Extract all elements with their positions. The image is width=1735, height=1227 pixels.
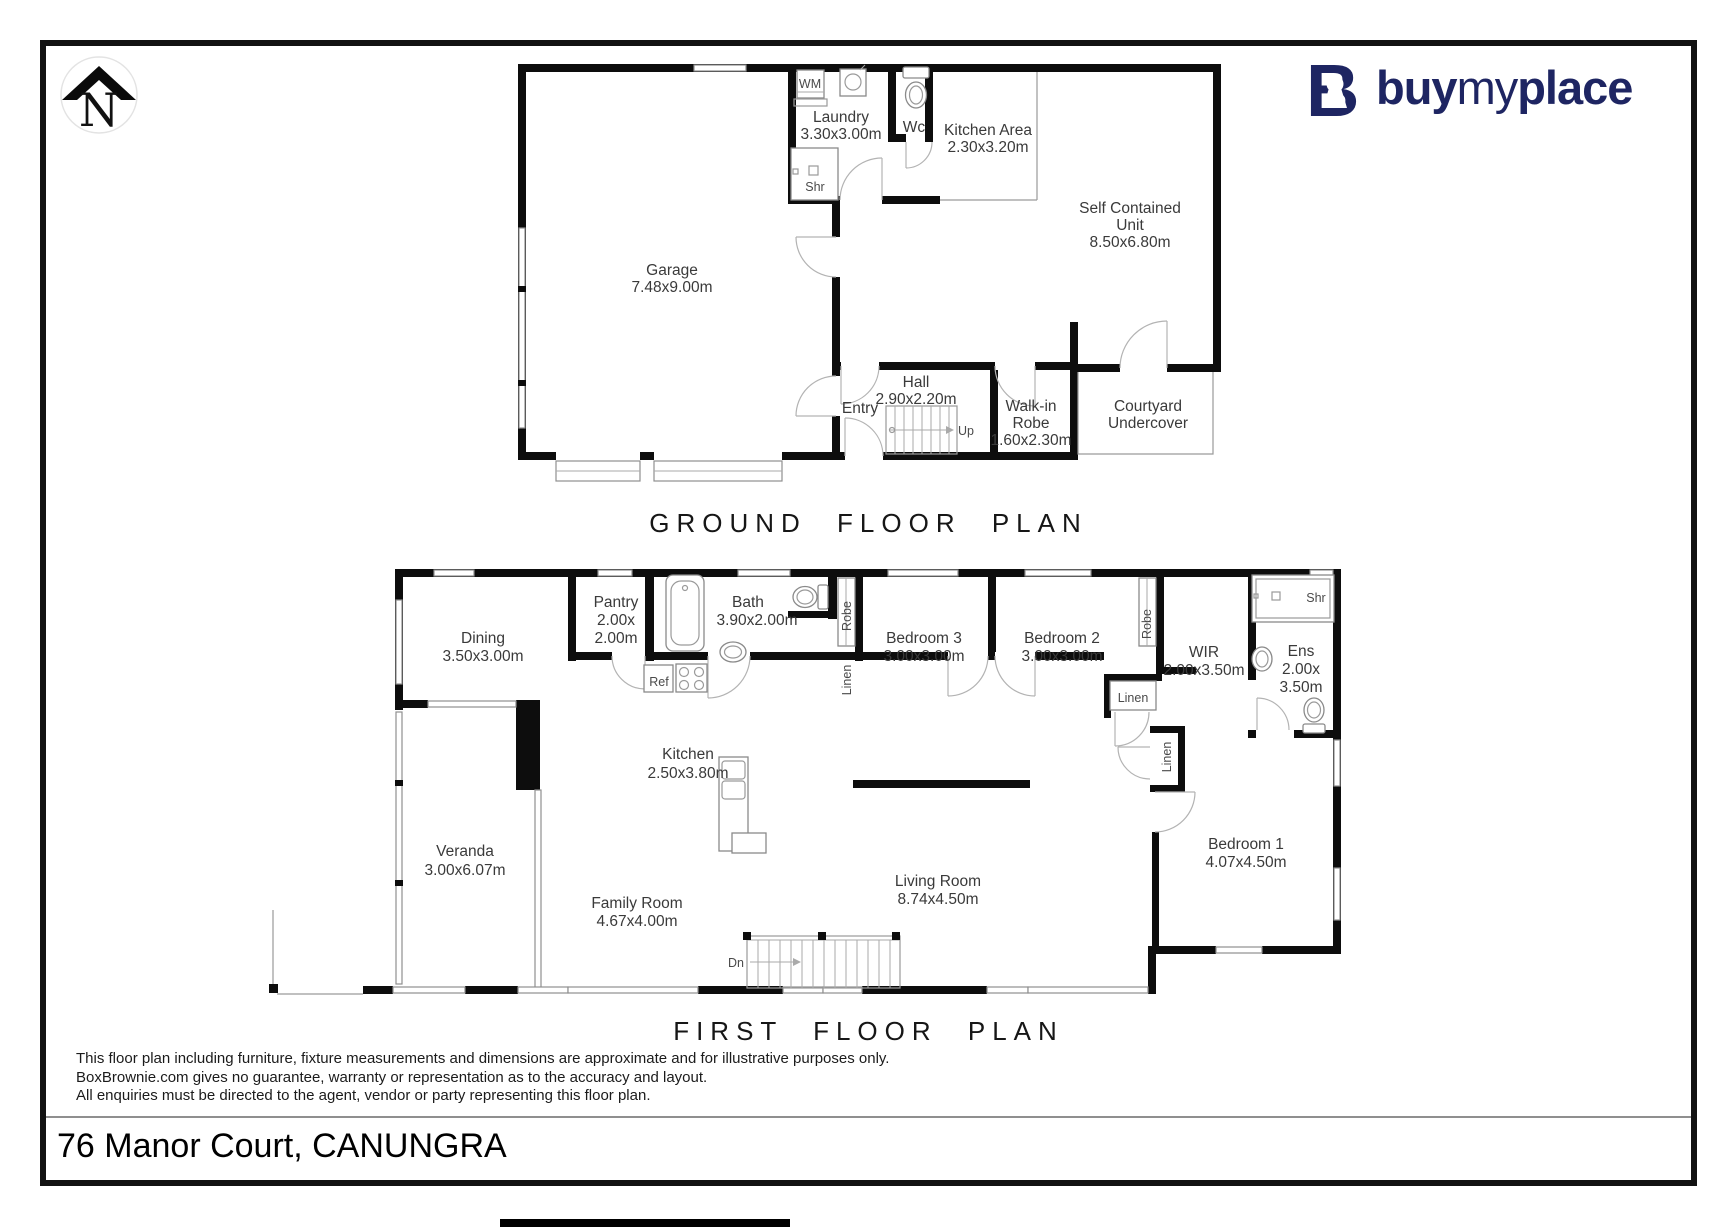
room-label-hall: Hall bbox=[903, 374, 930, 391]
room-label-dining: Dining bbox=[461, 630, 505, 647]
stairs-label-up: Up bbox=[958, 424, 974, 438]
ground-floor-heading: GROUND FLOOR PLAN bbox=[40, 508, 1697, 539]
room-dims-kitchen: 2.50x3.80m bbox=[648, 765, 729, 782]
first-doors bbox=[612, 656, 1289, 832]
room-dims-garage: 7.48x9.00m bbox=[632, 279, 713, 296]
room-dims-ens-1: 2.00x bbox=[1282, 661, 1320, 678]
veranda-deck-edge bbox=[269, 910, 363, 994]
toilet-icon-ground bbox=[903, 67, 929, 108]
room-dims-wir: 2.00x3.50m bbox=[1164, 662, 1245, 679]
bottom-page-strip bbox=[500, 1219, 790, 1227]
room-label-kitchen-area: Kitchen Area bbox=[944, 122, 1032, 139]
ground-labels: Garage 7.48x9.00m Laundry 3.30x3.00m Wc … bbox=[632, 77, 1189, 449]
room-dims-ens-2: 3.50m bbox=[1279, 679, 1322, 696]
ground-stairs-up bbox=[886, 406, 957, 454]
bath-toilet-icon bbox=[793, 585, 828, 609]
property-address: 76 Manor Court, CANUNGRA bbox=[57, 1127, 507, 1166]
disclaimer-line-2: BoxBrownie.com gives no guarantee, warra… bbox=[76, 1069, 889, 1088]
room-label-self-contained-2: Unit bbox=[1116, 217, 1144, 234]
room-label-entry: Entry bbox=[842, 400, 878, 417]
disclaimer-line-3: All enquiries must be directed to the ag… bbox=[76, 1087, 889, 1106]
room-label-courtyard-2: Undercover bbox=[1108, 415, 1188, 432]
room-dims-kitchen-area: 2.30x3.20m bbox=[948, 139, 1029, 156]
linen-label-hall: Linen bbox=[840, 665, 854, 696]
linen-label-2: Linen bbox=[1160, 742, 1174, 773]
room-label-garage: Garage bbox=[646, 262, 698, 279]
room-label-laundry: Laundry bbox=[813, 109, 869, 126]
stove-icon bbox=[676, 664, 707, 692]
room-dims-hall: 2.90x2.20m bbox=[876, 391, 957, 408]
room-dims-walkin: 1.60x2.30m bbox=[991, 432, 1072, 449]
room-label-ens: Ens bbox=[1288, 643, 1315, 660]
room-label-bedroom1: Bedroom 1 bbox=[1208, 836, 1284, 853]
fixture-label-shr-ground: Shr bbox=[805, 180, 824, 194]
room-label-walkin-1: Walk-in bbox=[1005, 398, 1056, 415]
robe-label-bed2: Robe bbox=[1140, 609, 1154, 639]
fixture-label-ref: Ref bbox=[649, 675, 669, 689]
floorplan-page: B buymyplace N bbox=[0, 0, 1735, 1227]
address-divider-line bbox=[46, 1116, 1691, 1118]
room-dims-self-contained: 8.50x6.80m bbox=[1090, 234, 1171, 251]
room-label-family: Family Room bbox=[591, 895, 682, 912]
room-label-wir: WIR bbox=[1189, 644, 1219, 661]
compass-north-letter: N bbox=[79, 83, 119, 137]
room-label-self-contained-1: Self Contained bbox=[1079, 200, 1181, 217]
disclaimer-text: This floor plan including furniture, fix… bbox=[76, 1050, 889, 1106]
ens-toilet-icon bbox=[1303, 698, 1325, 733]
bath-basin-icon bbox=[720, 642, 746, 662]
ground-floor-plan: Garage 7.48x9.00m Laundry 3.30x3.00m Wc … bbox=[518, 64, 1221, 481]
first-floor-heading: FIRST FLOOR PLAN bbox=[40, 1016, 1697, 1047]
robe-label-bed3: Robe bbox=[840, 601, 854, 631]
ens-basin-icon bbox=[1252, 647, 1272, 671]
room-dims-bath: 3.90x2.00m bbox=[717, 612, 798, 629]
room-dims-bedroom2: 3.00x3.00m bbox=[1022, 648, 1103, 665]
bathtub-icon bbox=[666, 575, 704, 651]
room-label-wc: Wc bbox=[903, 119, 926, 136]
laundry-sink-icon bbox=[840, 65, 866, 96]
room-dims-pantry-1: 2.00x bbox=[597, 612, 635, 629]
room-label-bedroom3: Bedroom 3 bbox=[886, 630, 962, 647]
north-compass: N bbox=[61, 57, 137, 137]
stairs-label-dn: Dn bbox=[728, 956, 744, 970]
room-label-kitchen: Kitchen bbox=[662, 746, 714, 763]
room-label-bedroom2: Bedroom 2 bbox=[1024, 630, 1100, 647]
first-fixtures bbox=[269, 575, 1334, 994]
room-dims-laundry: 3.30x3.00m bbox=[801, 126, 882, 143]
first-floor-plan: Dining 3.50x3.00m Pantry 2.00x 2.00m Bat… bbox=[269, 569, 1341, 994]
room-dims-family: 4.67x4.00m bbox=[597, 913, 678, 930]
fixture-label-shr-ens: Shr bbox=[1306, 591, 1325, 605]
room-dims-veranda: 3.00x6.07m bbox=[425, 862, 506, 879]
linen-label-1: Linen bbox=[1118, 691, 1149, 705]
room-dims-dining: 3.50x3.00m bbox=[443, 648, 524, 665]
room-label-living: Living Room bbox=[895, 873, 981, 890]
room-label-bath: Bath bbox=[732, 594, 764, 611]
room-dims-bedroom3: 3.00x3.00m bbox=[884, 648, 965, 665]
room-label-veranda: Veranda bbox=[436, 843, 494, 860]
room-dims-living: 8.74x4.50m bbox=[898, 891, 979, 908]
first-stairs-down bbox=[743, 932, 900, 988]
room-label-courtyard-1: Courtyard bbox=[1114, 398, 1182, 415]
room-label-walkin-2: Robe bbox=[1012, 415, 1049, 432]
room-dims-bedroom1: 4.07x4.50m bbox=[1206, 854, 1287, 871]
room-dims-pantry-2: 2.00m bbox=[594, 630, 637, 647]
fixture-label-wm: WM bbox=[799, 77, 821, 91]
disclaimer-line-1: This floor plan including furniture, fix… bbox=[76, 1050, 889, 1069]
room-label-pantry: Pantry bbox=[594, 594, 639, 611]
